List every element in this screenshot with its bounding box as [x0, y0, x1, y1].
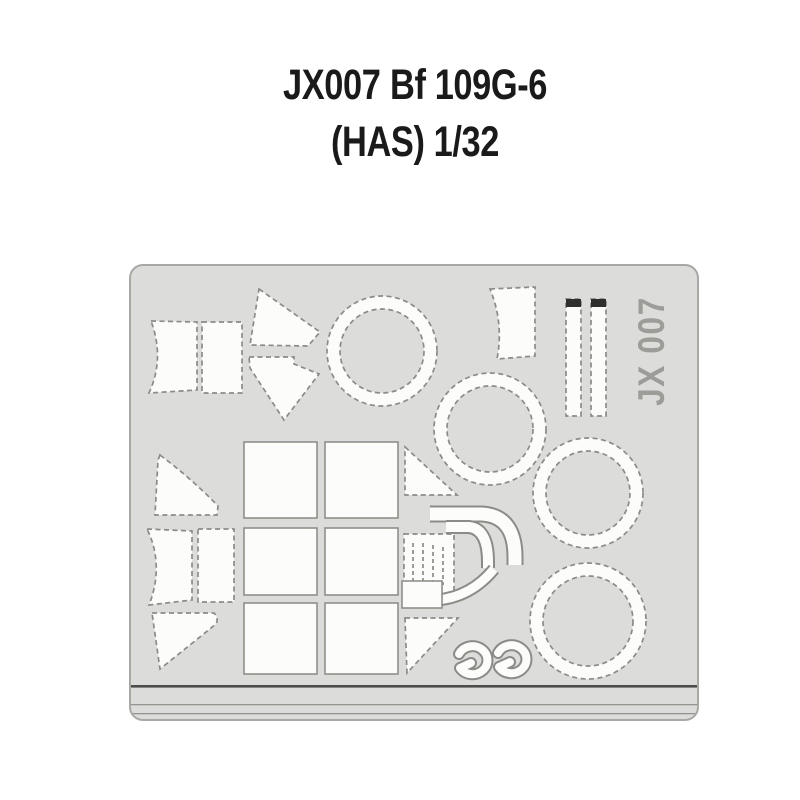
mask-curved-panel-left-mid [147, 529, 192, 605]
mask-wheel-ring-3-inner [546, 451, 630, 535]
product-title: JX007Bf 109G-6 (HAS) 1/32 [0, 60, 800, 167]
mask-wheel-ring-1-inner [340, 309, 424, 393]
mask-sheet: JX 007 [129, 264, 699, 721]
bottom-rule-light-2 [130, 713, 699, 714]
mask-triangle-upper-top [250, 289, 320, 346]
mask-square [325, 528, 398, 595]
mask-square-small [402, 581, 442, 608]
mask-triangle-lower-top [249, 357, 319, 420]
product-title-line-1: JX007Bf 109G-6 [95, 60, 735, 110]
mask-quarter-panel-left-bottom [152, 613, 217, 669]
mask-sheet-graphic: JX 007 [130, 265, 699, 721]
mask-rect-panel-left-mid [198, 529, 234, 602]
mask-curved-panel-top-left [149, 321, 197, 393]
product-scale: (HAS) 1/32 [95, 117, 735, 167]
film-strip-2-cap [591, 299, 606, 307]
bottom-rule-light-1 [130, 704, 699, 705]
film-strip-2 [591, 299, 606, 416]
mask-square [325, 442, 398, 518]
mask-square [325, 603, 398, 674]
mask-wheel-ring-4-inner [543, 576, 633, 666]
mask-quarter-panel-left-top [155, 455, 218, 515]
mask-curved-panel-top-right [490, 287, 535, 359]
mask-square [244, 442, 317, 518]
mask-rect-panel-top-left [202, 322, 242, 393]
bottom-rule-dark [130, 685, 699, 688]
mask-square-grid [244, 442, 398, 674]
sheet-etched-label: JX 007 [631, 296, 672, 406]
mask-square [244, 603, 317, 674]
product-subject: Bf 109G-6 [390, 61, 547, 109]
product-code: JX007 [283, 61, 380, 109]
film-strip-1-cap [566, 299, 581, 307]
film-strip-1 [566, 299, 581, 416]
mask-wheel-ring-2-inner [447, 386, 533, 472]
mask-square [244, 528, 317, 595]
mask-triangle-canopy-lower [405, 618, 458, 673]
